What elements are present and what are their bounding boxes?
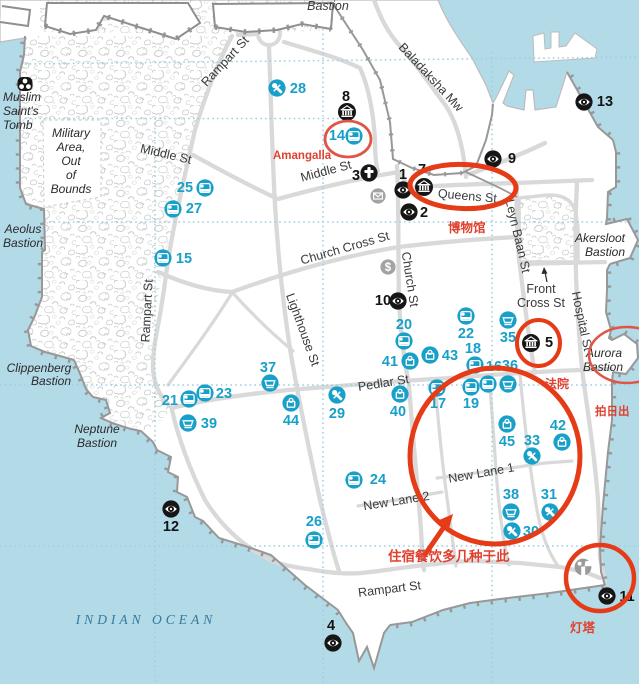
svg-text:Out: Out xyxy=(61,154,81,168)
svg-text:18: 18 xyxy=(465,341,481,357)
svg-text:Bastion: Bastion xyxy=(31,374,71,388)
svg-text:Area,: Area, xyxy=(56,140,86,154)
svg-text:14: 14 xyxy=(329,128,345,144)
svg-text:Akersloot: Akersloot xyxy=(574,231,626,245)
svg-text:Saint's: Saint's xyxy=(3,104,39,118)
svg-text:26: 26 xyxy=(306,514,322,530)
svg-text:Cross St: Cross St xyxy=(517,296,565,310)
svg-text:21: 21 xyxy=(162,393,178,409)
svg-text:10: 10 xyxy=(375,293,391,309)
svg-text:31: 31 xyxy=(541,487,557,503)
svg-text:15: 15 xyxy=(176,251,192,267)
svg-text:13: 13 xyxy=(597,94,613,110)
svg-text:19: 19 xyxy=(463,396,479,412)
svg-text:Bastion: Bastion xyxy=(307,0,349,13)
svg-text:25: 25 xyxy=(177,180,193,196)
svg-text:1: 1 xyxy=(399,167,407,183)
svg-text:拍日出: 拍日出 xyxy=(595,404,630,418)
svg-text:23: 23 xyxy=(216,386,232,402)
svg-text:35: 35 xyxy=(500,330,516,346)
svg-text:37: 37 xyxy=(260,360,276,376)
svg-text:44: 44 xyxy=(283,413,299,429)
svg-text:27: 27 xyxy=(186,201,202,217)
svg-text:Bastion: Bastion xyxy=(585,245,625,259)
svg-text:of: of xyxy=(66,168,78,182)
svg-text:INDIAN OCEAN: INDIAN OCEAN xyxy=(75,612,217,627)
svg-text:40: 40 xyxy=(390,404,406,420)
svg-text:Muslim: Muslim xyxy=(3,90,41,104)
svg-text:住宿餐饮多几种于此: 住宿餐饮多几种于此 xyxy=(388,548,510,564)
svg-text:9: 9 xyxy=(508,151,516,167)
svg-text:Aeolus: Aeolus xyxy=(4,222,42,236)
svg-text:3: 3 xyxy=(352,168,360,184)
svg-text:灯塔: 灯塔 xyxy=(570,620,596,635)
svg-text:33: 33 xyxy=(524,433,540,449)
svg-text:29: 29 xyxy=(329,406,345,422)
svg-text:4: 4 xyxy=(327,618,335,634)
svg-text:38: 38 xyxy=(503,487,519,503)
svg-text:20: 20 xyxy=(396,317,412,333)
svg-text:5: 5 xyxy=(545,335,553,351)
svg-text:45: 45 xyxy=(499,434,515,450)
svg-text:8: 8 xyxy=(342,89,350,105)
svg-text:Tomb: Tomb xyxy=(3,118,33,132)
svg-text:Amangalla: Amangalla xyxy=(273,150,332,162)
svg-text:41: 41 xyxy=(382,354,398,370)
svg-text:43: 43 xyxy=(442,348,458,364)
svg-text:Military: Military xyxy=(52,126,91,140)
svg-text:12: 12 xyxy=(163,519,179,535)
svg-text:法院: 法院 xyxy=(545,376,569,391)
svg-text:39: 39 xyxy=(201,416,217,432)
svg-text:博物馆: 博物馆 xyxy=(448,220,486,235)
svg-text:$: $ xyxy=(385,262,392,274)
svg-text:28: 28 xyxy=(290,81,306,97)
svg-text:24: 24 xyxy=(370,472,386,488)
svg-text:2: 2 xyxy=(420,205,428,221)
svg-text:22: 22 xyxy=(458,326,474,342)
svg-text:Neptune: Neptune xyxy=(74,422,120,436)
svg-text:Clippenberg: Clippenberg xyxy=(7,361,72,375)
svg-text:Bastion: Bastion xyxy=(3,236,43,250)
svg-text:Bastion: Bastion xyxy=(77,436,117,450)
svg-text:42: 42 xyxy=(550,418,566,434)
svg-text:Bounds: Bounds xyxy=(51,182,92,196)
svg-text:Front: Front xyxy=(526,282,556,296)
